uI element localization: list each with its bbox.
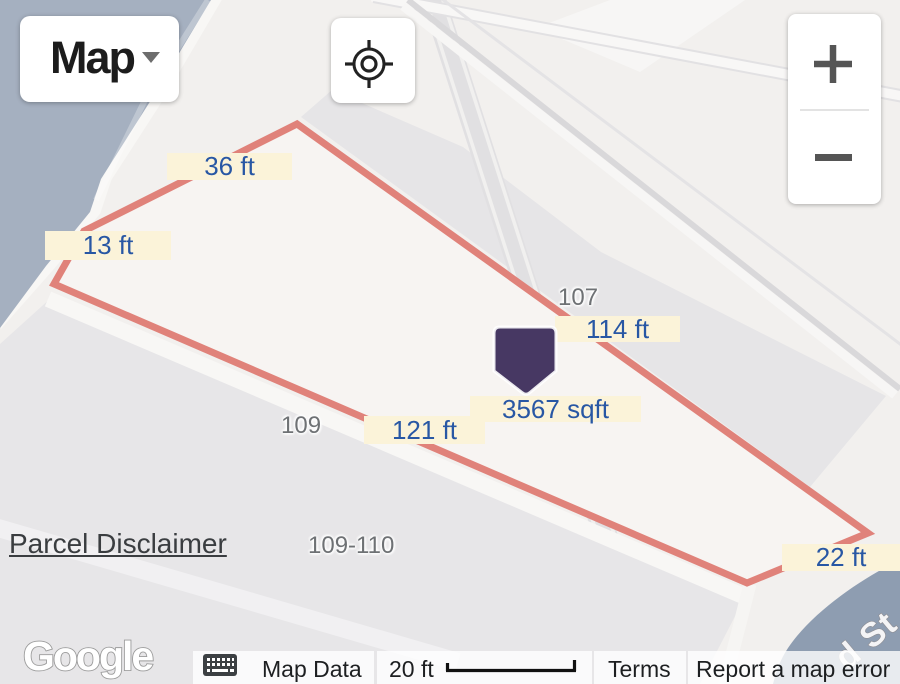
svg-text:Google: Google (23, 633, 153, 679)
